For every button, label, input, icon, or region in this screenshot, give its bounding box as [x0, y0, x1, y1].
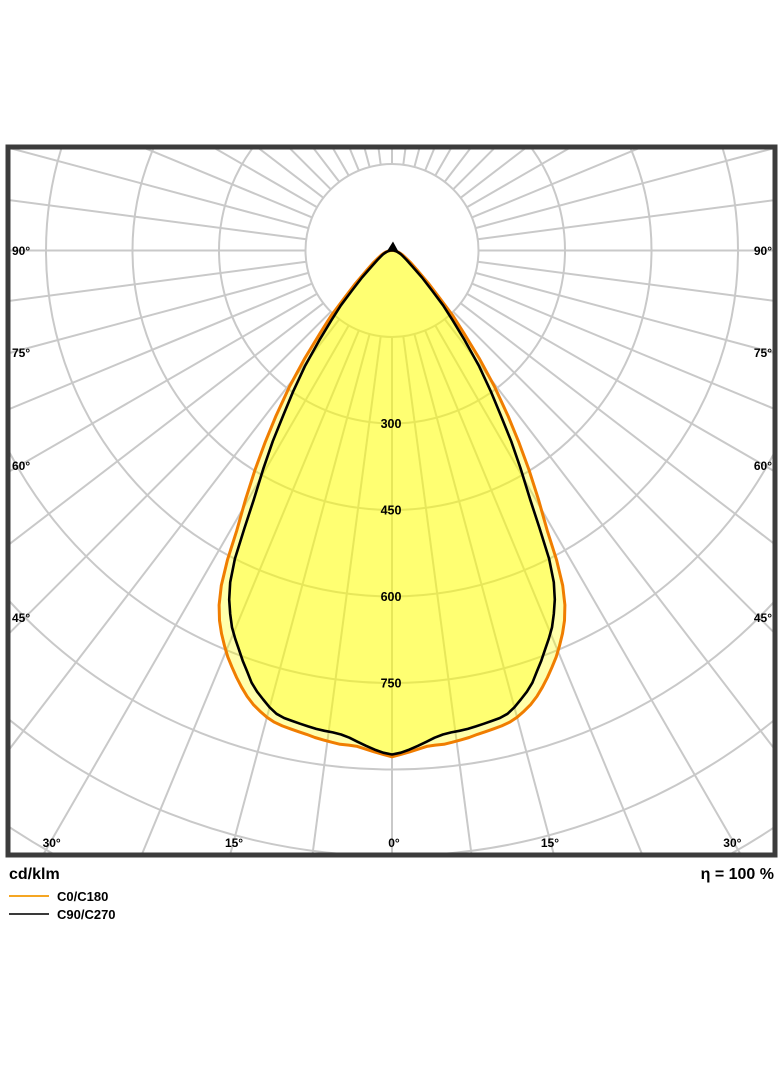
efficiency-label: η = 100 % [701, 866, 774, 883]
grid-spoke [445, 0, 784, 182]
angle-label-bottom: 15° [541, 836, 559, 850]
photometric-datasheet-page: 30045060075090°75°60°45°90°75°60°45°30°1… [0, 0, 784, 1066]
grid-spoke [0, 46, 308, 228]
grid-spoke [0, 0, 339, 182]
angle-label-bottom: 15° [225, 836, 243, 850]
ring-value-label: 750 [381, 677, 402, 691]
angle-label-bottom: 30° [43, 836, 61, 850]
angle-label-bottom: 0° [388, 836, 400, 850]
ring-value-label: 450 [381, 504, 402, 518]
ring-value-label: 300 [381, 417, 402, 431]
angle-label-left: 45° [12, 611, 30, 625]
angle-label-right: 90° [754, 244, 772, 258]
grid-spoke [289, 0, 381, 165]
ring-value-label: 600 [381, 590, 402, 604]
legend: C0/C180 C90/C270 [9, 889, 116, 922]
grid-spoke [467, 0, 784, 207]
angle-label-right: 75° [754, 346, 772, 360]
grid-spoke [461, 0, 784, 198]
grid-spoke [403, 0, 495, 165]
angle-label-left: 90° [12, 244, 30, 258]
grid-spoke [472, 0, 784, 217]
grid-spoke [476, 46, 784, 228]
grid-spoke [0, 0, 331, 189]
angle-label-left: 75° [12, 346, 30, 360]
angle-label-left: 60° [12, 459, 30, 473]
grid-spoke [0, 0, 312, 217]
legend-label-c0: C0/C180 [57, 889, 108, 904]
grid-spoke [188, 0, 370, 167]
polar-photometric-chart: 30045060075090°75°60°45°90°75°60°45°30°1… [0, 0, 784, 1066]
grid-spoke [0, 0, 317, 207]
grid-spoke [0, 0, 323, 198]
grid-spoke [453, 0, 784, 189]
angle-label-right: 60° [754, 459, 772, 473]
legend-label-c90: C90/C270 [57, 907, 116, 922]
unit-label: cd/klm [9, 866, 60, 883]
grid-spoke [414, 0, 596, 167]
angle-label-right: 45° [754, 611, 772, 625]
angle-label-bottom: 30° [723, 836, 741, 850]
